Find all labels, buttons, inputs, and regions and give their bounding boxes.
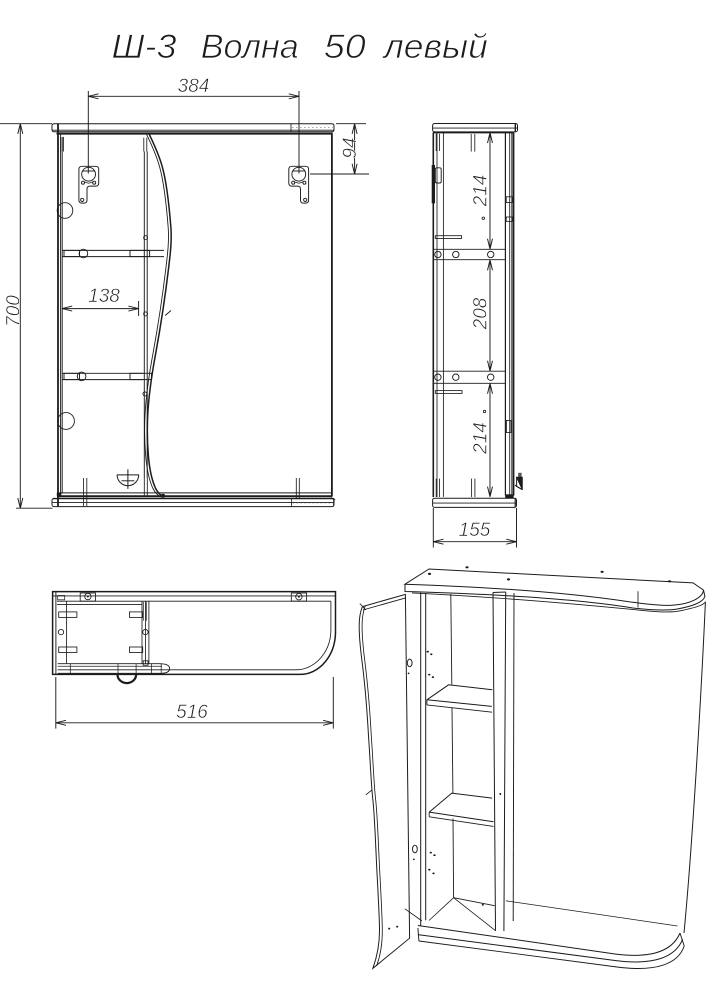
svg-text:208: 208 [471,297,492,330]
svg-text:700: 700 [4,295,25,327]
svg-text:50: 50 [324,28,366,66]
svg-text:Волна: Волна [201,28,299,66]
svg-text:516: 516 [176,702,208,723]
svg-text:214: 214 [471,422,492,455]
svg-text:384: 384 [178,76,210,97]
svg-text:Ш-3: Ш-3 [112,28,177,66]
svg-text:левый: левый [382,28,488,66]
svg-text:94: 94 [340,137,361,158]
svg-text:214: 214 [471,175,492,208]
svg-text:155: 155 [459,520,491,541]
svg-text:138: 138 [88,286,120,307]
